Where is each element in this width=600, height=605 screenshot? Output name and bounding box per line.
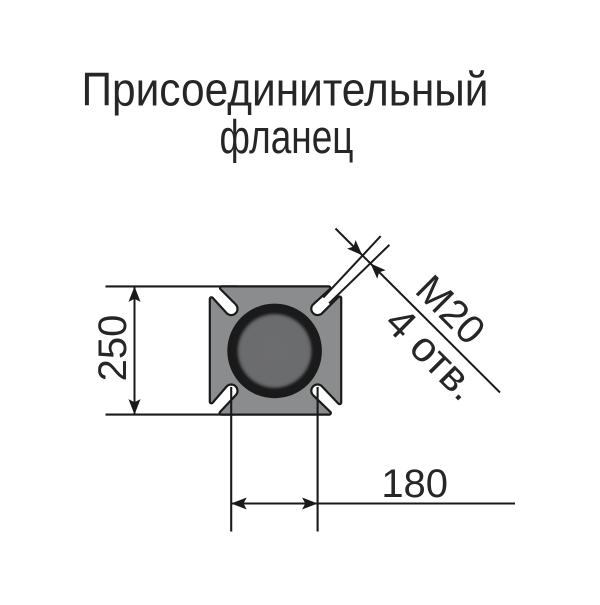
svg-text:250: 250 (91, 315, 135, 382)
svg-text:Присоединительный: Присоединительный (82, 64, 489, 117)
svg-text:180: 180 (381, 462, 448, 506)
svg-text:фланец: фланец (220, 111, 354, 164)
